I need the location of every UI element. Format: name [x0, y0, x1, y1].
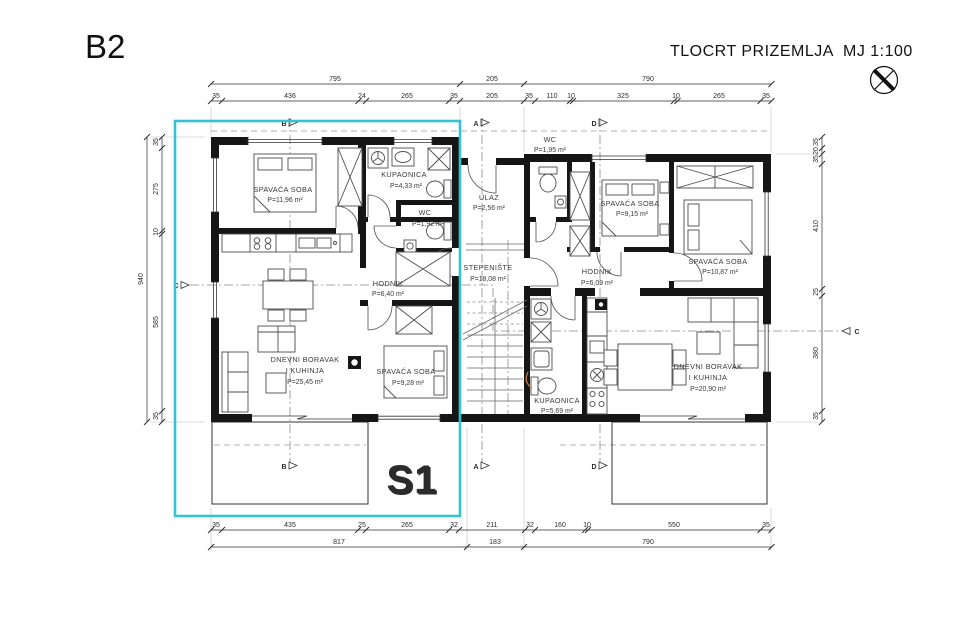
room-area: P=1,92 m²: [412, 221, 445, 228]
sheet-label: B2: [85, 28, 125, 65]
side-table-s1: [266, 373, 286, 393]
section-marker-b-bottom: B: [281, 464, 286, 471]
room-name: WC: [544, 135, 557, 144]
s1-bath-door: [368, 195, 390, 217]
terrace-right: [612, 422, 767, 504]
dim-label: 35: [813, 412, 820, 420]
dim-label: 35: [525, 93, 533, 100]
section-marker-a-top: A: [473, 121, 478, 128]
room-name: KUPAONICA: [534, 396, 580, 405]
section-arrow-icon: [599, 462, 607, 469]
dim-label: 10: [583, 522, 591, 529]
dim-label: 35: [450, 93, 458, 100]
dim-label: 550: [668, 522, 680, 529]
north-symbol-icon: [871, 67, 898, 94]
washing-machine-s1-icon: [368, 148, 388, 168]
dim-label: 265: [401, 522, 413, 529]
dim-label: 35: [813, 138, 820, 146]
dim-label: 35: [813, 155, 820, 163]
room-area: P=5,69 m²: [541, 408, 574, 415]
floor-plan-canvas: B2 TLOCRT PRIZEMLJA MJ 1:100 795 205 790…: [0, 0, 960, 640]
dim-label: 160: [554, 522, 566, 529]
room-name: DNEVNI BORAVAK: [271, 355, 340, 364]
dim-label: 35: [212, 522, 220, 529]
dim-label: 35: [153, 138, 160, 146]
dim-label: 10: [567, 93, 575, 100]
s2-entry-door: [530, 258, 558, 286]
tv-bench-s1: [258, 326, 295, 352]
unit-s1-label: S1: [387, 458, 438, 502]
dim-label: 25: [358, 522, 366, 529]
room-name: I KUHINJA: [286, 366, 324, 375]
dim-label: 110: [546, 93, 557, 100]
dim-label: 10: [153, 228, 160, 236]
kitchen-s1: [222, 234, 352, 252]
s2-wc-door: [536, 222, 556, 242]
toilet-s2-bath-icon: [526, 372, 556, 395]
dim-label: 35: [212, 93, 220, 100]
shower-s1-icon: [428, 148, 450, 170]
room-area: P=20,90 m²: [690, 386, 727, 393]
sofa-s1: [222, 352, 248, 412]
section-marker-c-right: C: [854, 329, 859, 336]
room-area: P=9,28 m²: [392, 380, 425, 387]
room-area: P=2,56 m²: [473, 205, 506, 212]
s2-bath-door: [551, 296, 575, 320]
room-name: HODNIK: [373, 279, 403, 288]
dim-label: 817: [333, 539, 345, 546]
boiler-s1-icon: [348, 356, 361, 369]
bed-s2-bedroom2: [684, 200, 752, 254]
dimensions-right: 35 20 35 410 25 380 35: [813, 134, 825, 425]
dim-label: 325: [617, 93, 629, 100]
room-name: KUPAONICA: [381, 170, 427, 179]
sink-s2-wc-icon: [555, 196, 566, 208]
sink-s1-bath-icon: [392, 148, 414, 166]
sink-s1-wc-icon: [404, 240, 416, 252]
s1-bedroom1-door: [336, 206, 358, 228]
room-name: I KUHINJA: [689, 373, 727, 382]
terraces: [212, 422, 767, 504]
section-arrow-icon: [481, 462, 489, 469]
dim-label: 35: [762, 93, 770, 100]
dimensions-bottom: 35 435 25 265 32 211 32 160 10 550 35 81…: [208, 522, 775, 550]
room-name: STEPENIŠTE: [464, 263, 513, 272]
terrace-slider-right: [640, 416, 745, 419]
dim-label: 410: [813, 220, 820, 232]
dim-label: 25: [813, 288, 820, 296]
room-area: P=10,87 m²: [702, 269, 739, 276]
section-marker-d-bottom: D: [591, 464, 596, 471]
dimensions-left: 35 275 10 585 35 940: [138, 134, 165, 425]
dim-label: 435: [284, 522, 296, 529]
coffee-table-s2: [697, 332, 720, 354]
room-area: P=4,33 m²: [390, 183, 423, 190]
dim-label: 10: [672, 93, 680, 100]
dining-table-s1: [263, 269, 313, 321]
dim-label: 35: [762, 522, 770, 529]
room-name: HODNIK: [582, 267, 612, 276]
dim-label: 790: [642, 76, 654, 83]
section-arrow-icon: [181, 282, 189, 289]
section-marker-a-bottom: A: [473, 464, 478, 471]
room-name: ULAZ: [479, 193, 499, 202]
room-name: WC: [419, 208, 432, 217]
dim-label: 24: [358, 93, 366, 100]
dim-label: 795: [329, 76, 341, 83]
dim-label: 436: [284, 93, 296, 100]
dim-label: 380: [813, 347, 820, 359]
dim-label: 205: [486, 93, 498, 100]
sink-s2-bath-icon: [531, 348, 552, 370]
room-area: P=18,08 m²: [470, 276, 507, 283]
dim-label: 183: [489, 539, 501, 546]
room-name: DNEVNI BORAVAK: [674, 362, 743, 371]
toilet-s2-wc-icon: [539, 167, 557, 192]
section-marker-d-top: D: [591, 121, 596, 128]
toilet-s1-bath-icon: [427, 180, 452, 198]
room-name: SPAVAĆA SOBA: [689, 257, 748, 266]
dim-label: 20: [813, 147, 820, 155]
room-area: P=11,96 m²: [267, 197, 303, 204]
bed-s2-bedroom1: [602, 180, 669, 236]
room-name: SPAVAĆA SOBA: [377, 367, 436, 376]
scale-label: MJ 1:100: [843, 43, 913, 60]
dim-label: 35: [153, 412, 160, 420]
washing-machine-s2-icon: [531, 299, 551, 319]
room-area: P=1,95 m²: [534, 147, 567, 154]
room-name: SPAVAĆA SOBA: [601, 199, 660, 208]
dim-label: 211: [486, 522, 497, 529]
room-area: P=25,45 m²: [287, 379, 324, 386]
room-name: SPAVAĆA SOBA: [254, 185, 313, 194]
terrace-slider-left: [252, 416, 352, 419]
dim-label: 265: [713, 93, 725, 100]
s1-wc-door: [374, 226, 396, 248]
dim-label: 265: [401, 93, 413, 100]
dim-label: 940: [138, 273, 145, 285]
page-title: TLOCRT PRIZEMLJA: [670, 43, 834, 60]
dim-label: 32: [450, 522, 458, 529]
terrace-left: [212, 422, 368, 504]
room-area: P=9,15 m²: [616, 211, 649, 218]
dimensions-top: 795 205 790 35 436 24 265 35 205 35 110 …: [208, 76, 775, 104]
dim-label: 32: [526, 522, 534, 529]
section-arrow-icon: [842, 328, 850, 335]
floor-plan-sheet: B2 TLOCRT PRIZEMLJA MJ 1:100 795 205 790…: [0, 0, 960, 640]
sofa-s2: [688, 298, 758, 368]
room-area: P=6,09 m²: [581, 280, 614, 287]
section-arrow-icon: [289, 462, 297, 469]
dim-label: 585: [153, 316, 160, 328]
dim-label: 790: [642, 539, 654, 546]
s1-bedroom2-door: [368, 306, 392, 330]
dim-label: 205: [486, 76, 498, 83]
dim-label: 275: [153, 183, 160, 195]
room-area: P=6,40 m²: [372, 291, 405, 298]
